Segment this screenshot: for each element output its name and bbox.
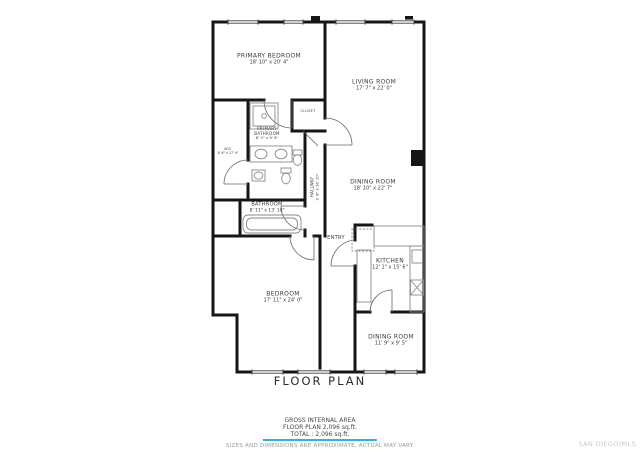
gross-internal-area-heading: GROSS INTERNAL AREA	[226, 417, 414, 424]
room-label-bedroom: BEDROOM 17' 11" x 24' 0"	[264, 292, 303, 305]
disclaimer-text: SIZES AND DIMENSIONS ARE APPROXIMATE, AC…	[226, 443, 414, 449]
room-dims: 18' 10" x 20' 4"	[237, 61, 301, 67]
room-label-hallway: HALLWAY 3' 8" x 16' 10"	[311, 173, 320, 200]
total-area-line: TOTAL : 2,096 sq.ft.	[226, 431, 414, 438]
room-dims: 12' 1" x 15' 6"	[372, 266, 408, 272]
room-label-primary-bathroom: PRIMARY BATHROOM 8' 2" x 9' 9"	[249, 127, 285, 141]
room-name: BATHROOM	[249, 203, 284, 209]
room-dims: 3' 8" x 16' 10"	[315, 173, 319, 200]
bathtub-icon	[243, 215, 301, 233]
room-label-dining-room-upper: DINING ROOM 18' 10" x 22' 7"	[350, 180, 396, 193]
windows	[228, 19, 417, 374]
accent-rule	[263, 439, 377, 441]
room-label-living-room: LIVING ROOM 17' 7" x 22' 0"	[352, 80, 396, 93]
wall-stub	[411, 150, 424, 166]
room-dims: 17' 7" x 22' 0"	[352, 87, 396, 93]
room-dims: 8' 2" x 9' 9"	[249, 136, 285, 140]
double-sink-icon	[250, 146, 292, 162]
floor-plan-canvas: PRIMARY BEDROOM 18' 10" x 20' 4" LIVING …	[0, 0, 640, 453]
stove-icon	[411, 280, 424, 295]
room-dims: 6' 6" x 17' 9"	[218, 152, 239, 156]
room-label-wic: WIC 6' 6" x 17' 9"	[218, 148, 239, 156]
shower-icon	[250, 103, 278, 129]
room-label-dining-room-lower: DINING ROOM 11' 9" x 9' 5"	[368, 335, 414, 348]
footer-area-summary: GROSS INTERNAL AREA FLOOR PLAN 2,096 sq.…	[226, 417, 414, 449]
room-name: CLOSET	[301, 110, 316, 114]
mls-watermark: SAN DIEGO|MLS	[578, 440, 636, 448]
room-label-entry: ENTRY	[327, 236, 345, 242]
plan-title: FLOOR PLAN	[274, 374, 366, 388]
room-dims: 11' 9" x 9' 5"	[368, 342, 414, 348]
room-label-primary-bedroom: PRIMARY BEDROOM 18' 10" x 20' 4"	[237, 54, 301, 67]
sink-icon	[252, 170, 265, 181]
toilet-icon	[293, 150, 302, 165]
room-label-closet: CLOSET	[301, 110, 316, 114]
room-dims: 8' 11" x 13' 10"	[249, 208, 284, 213]
kitchen-sink-icon	[412, 250, 423, 263]
room-dims: 17' 11" x 24' 0"	[264, 299, 303, 305]
room-name: ENTRY	[327, 236, 345, 242]
room-label-kitchen: KITCHEN 12' 1" x 15' 6"	[372, 259, 408, 272]
room-label-bathroom: BATHROOM 8' 11" x 13' 10"	[249, 203, 284, 214]
toilet-icon-2	[281, 168, 291, 184]
room-dims: 18' 10" x 22' 7"	[350, 187, 396, 193]
floor-plan-area-line: FLOOR PLAN 2,096 sq.ft.	[226, 424, 414, 431]
